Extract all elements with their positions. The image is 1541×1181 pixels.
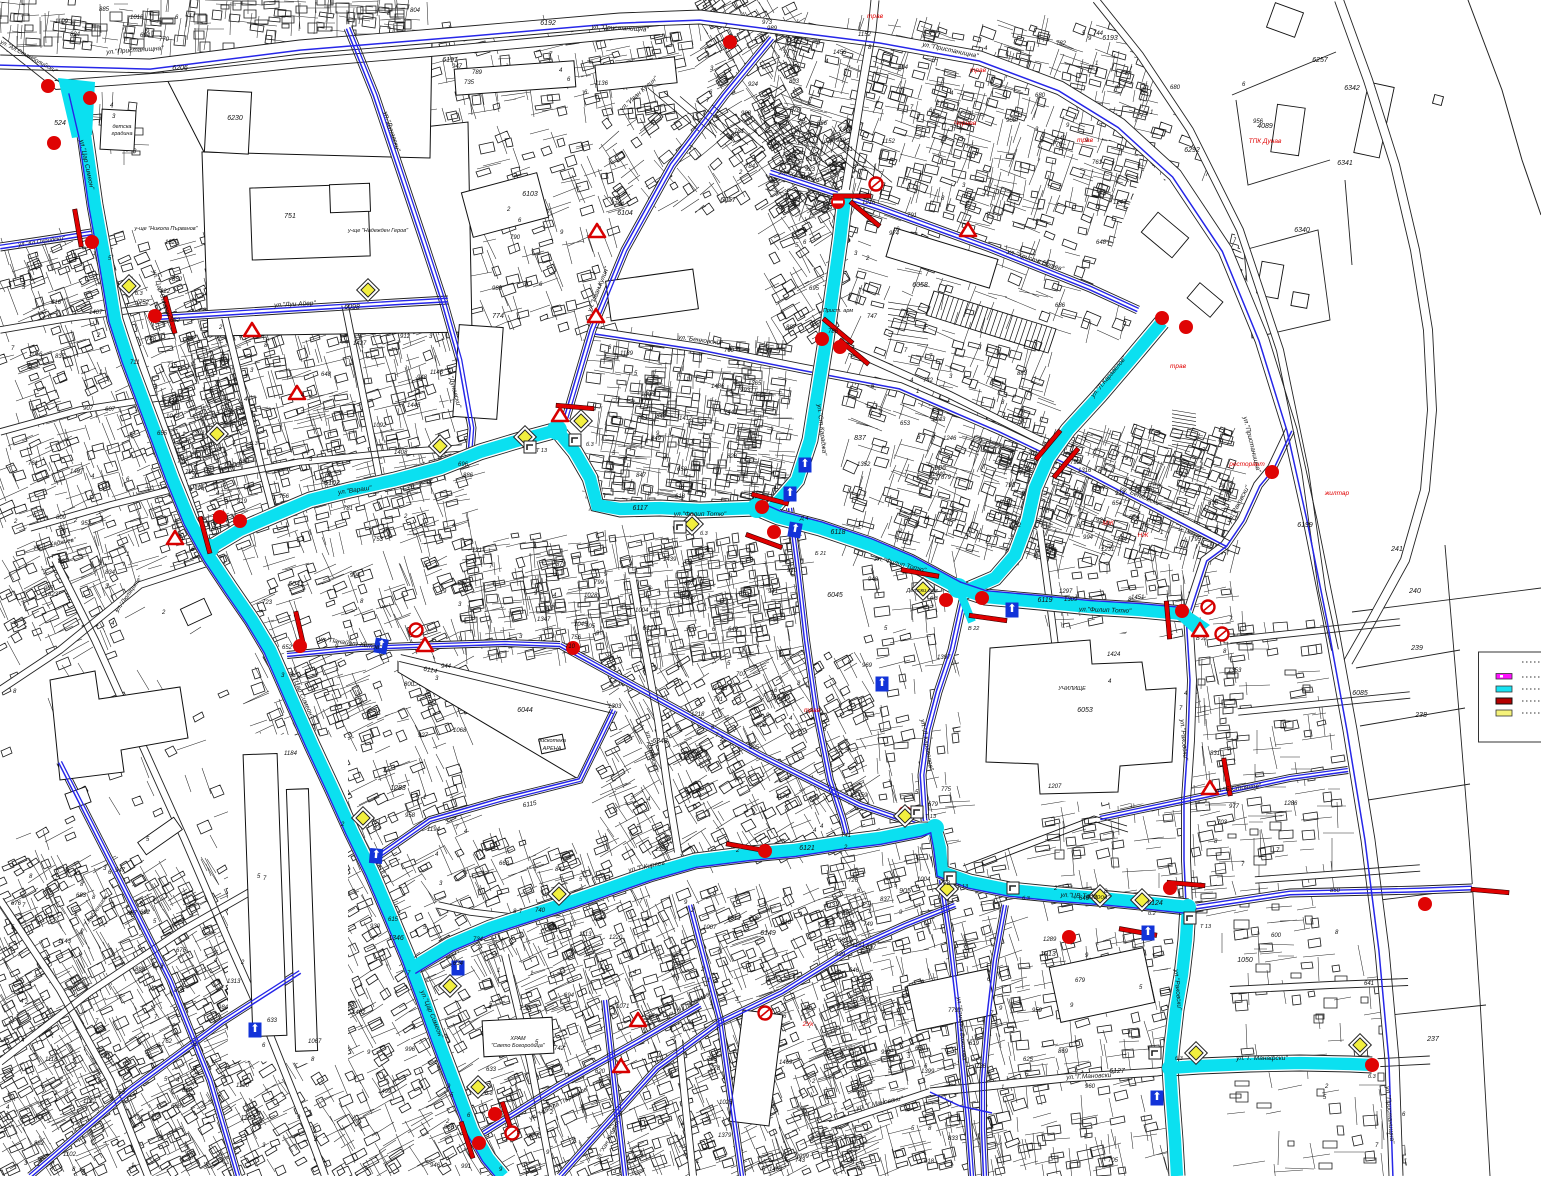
svg-text:1379: 1379: [718, 1133, 732, 1139]
svg-text:1: 1: [707, 978, 710, 984]
svg-text:Т 13: Т 13: [925, 814, 937, 820]
svg-text:1329: 1329: [165, 240, 179, 246]
svg-text:2: 2: [865, 256, 870, 262]
svg-text:6292: 6292: [1184, 147, 1200, 154]
svg-text:1013: 1013: [727, 916, 741, 922]
svg-text:"Свето Богородица": "Свето Богородица": [491, 1043, 546, 1049]
svg-text:882: 882: [34, 1141, 45, 1147]
svg-text:744: 744: [1093, 31, 1104, 37]
svg-text:705: 705: [1108, 1158, 1119, 1164]
svg-text:960: 960: [1085, 1084, 1096, 1090]
svg-text:1486: 1486: [711, 384, 725, 390]
svg-text:6100: 6100: [224, 462, 240, 469]
svg-text:648: 648: [321, 372, 332, 378]
svg-text:6191: 6191: [442, 57, 458, 64]
svg-text:1013: 1013: [1040, 951, 1056, 958]
svg-text:756: 756: [571, 635, 582, 641]
svg-text:2: 2: [935, 101, 940, 107]
svg-text:6124: 6124: [1147, 900, 1163, 907]
svg-text:1006: 1006: [641, 392, 655, 398]
svg-text:809: 809: [56, 515, 67, 521]
svg-text:834: 834: [105, 570, 116, 576]
svg-text:6121: 6121: [799, 845, 815, 852]
svg-text:751: 751: [371, 820, 381, 826]
svg-text:2: 2: [1324, 1084, 1329, 1090]
svg-text:966: 966: [444, 1125, 455, 1131]
svg-text:633: 633: [267, 1018, 278, 1024]
svg-text:2: 2: [1053, 886, 1058, 892]
svg-text:2: 2: [735, 848, 740, 854]
svg-text:1424: 1424: [1107, 652, 1121, 658]
svg-text:6053: 6053: [1077, 707, 1093, 714]
svg-text:676: 676: [11, 901, 22, 907]
svg-text:753: 753: [115, 1090, 126, 1096]
svg-text:711: 711: [1028, 451, 1038, 457]
svg-text:947: 947: [452, 64, 463, 70]
svg-text:1: 1: [223, 449, 226, 455]
svg-text:907: 907: [83, 406, 94, 412]
svg-text:1441: 1441: [724, 410, 737, 416]
svg-text:б.3: б.3: [250, 441, 259, 447]
svg-text:648: 648: [1096, 240, 1107, 246]
svg-text:646: 646: [1079, 896, 1090, 902]
svg-text:759: 759: [770, 695, 781, 701]
svg-text:944: 944: [441, 664, 452, 670]
svg-text:715: 715: [167, 363, 178, 369]
svg-text:707: 707: [736, 672, 747, 678]
svg-text:1092: 1092: [373, 423, 387, 429]
svg-text:6342: 6342: [1344, 85, 1360, 92]
svg-text:2: 2: [567, 953, 572, 959]
svg-text:1334: 1334: [655, 847, 669, 853]
svg-text:1176: 1176: [776, 794, 790, 800]
svg-text:Т 13: Т 13: [536, 448, 548, 454]
svg-text:1139: 1139: [620, 351, 634, 357]
svg-text:1: 1: [856, 1052, 859, 1058]
svg-text:1067: 1067: [308, 1039, 322, 1045]
svg-text:675: 675: [176, 948, 187, 954]
svg-text:781: 781: [343, 506, 353, 512]
svg-text:1182: 1182: [83, 1099, 97, 1105]
svg-text:828: 828: [727, 454, 738, 460]
svg-text:6119: 6119: [1037, 597, 1052, 604]
svg-text:615: 615: [388, 917, 399, 923]
svg-text:трав: трав: [867, 13, 884, 20]
svg-text:Т 13: Т 13: [1200, 924, 1212, 930]
svg-text:625: 625: [1023, 1057, 1034, 1063]
svg-text:2: 2: [24, 1000, 29, 1006]
svg-text:1451: 1451: [1131, 595, 1144, 601]
svg-text:6104: 6104: [617, 210, 633, 217]
svg-text:800: 800: [404, 682, 415, 688]
svg-text:776: 776: [1052, 142, 1063, 148]
svg-text:1: 1: [1160, 530, 1163, 536]
svg-text:783: 783: [707, 1057, 718, 1063]
svg-text:618: 618: [924, 1159, 935, 1165]
svg-text:трав: трав: [970, 67, 987, 74]
svg-text:697: 697: [127, 911, 138, 917]
svg-text:680: 680: [1170, 85, 1181, 91]
svg-text:2: 2: [506, 207, 511, 213]
svg-text:6193: 6193: [1102, 35, 1118, 42]
svg-text:1007: 1007: [703, 925, 717, 931]
svg-text:778: 778: [940, 881, 951, 887]
svg-text:б.3: б.3: [1022, 896, 1031, 902]
svg-text:887: 887: [786, 325, 797, 331]
svg-text:1152: 1152: [882, 139, 896, 145]
svg-text:959: 959: [1032, 1008, 1043, 1014]
svg-text:837: 837: [880, 897, 891, 903]
svg-text:1218: 1218: [691, 712, 705, 718]
svg-text:6044: 6044: [517, 707, 533, 714]
svg-text:654: 654: [1129, 515, 1140, 521]
svg-text:927: 927: [418, 733, 429, 739]
svg-text:711: 711: [130, 360, 140, 366]
svg-text:2: 2: [719, 737, 724, 743]
svg-text:6098: 6098: [344, 304, 360, 311]
svg-text:633: 633: [486, 1067, 497, 1073]
svg-text:УЧИЛИЩЕ: УЧИЛИЩЕ: [1057, 686, 1086, 692]
svg-text:1303: 1303: [608, 704, 622, 710]
svg-text:1207: 1207: [1048, 784, 1062, 790]
svg-text:775: 775: [941, 787, 952, 793]
svg-text:906: 906: [934, 465, 946, 472]
svg-text:993: 993: [740, 388, 751, 394]
svg-text:616: 616: [51, 300, 62, 306]
svg-text:1: 1: [37, 1162, 40, 1168]
svg-text:619: 619: [969, 1041, 980, 1047]
svg-text:1243: 1243: [932, 417, 946, 423]
svg-text:658: 658: [677, 467, 688, 473]
svg-text:б.3: б.3: [700, 531, 709, 537]
svg-text:1246: 1246: [943, 436, 957, 442]
svg-text:1: 1: [1095, 61, 1098, 67]
svg-text:1216: 1216: [862, 200, 876, 206]
svg-text:860: 860: [239, 459, 250, 465]
svg-text:1068: 1068: [453, 728, 467, 734]
svg-text:946: 946: [430, 1163, 441, 1169]
svg-text:847: 847: [636, 473, 647, 479]
svg-text:трав: трав: [1077, 137, 1094, 144]
svg-text:1050: 1050: [1237, 957, 1253, 964]
svg-text:680: 680: [1035, 93, 1046, 99]
svg-text:652: 652: [170, 318, 181, 324]
svg-text:652: 652: [282, 645, 293, 651]
svg-text:790: 790: [510, 235, 521, 241]
svg-text:603: 603: [838, 938, 849, 944]
svg-text:детска: детска: [113, 124, 132, 130]
svg-text:1217: 1217: [472, 548, 486, 554]
svg-text:2: 2: [53, 1091, 58, 1097]
svg-text:239: 239: [1410, 645, 1423, 652]
svg-text:1: 1: [916, 389, 919, 395]
svg-text:701: 701: [100, 1054, 110, 1060]
svg-text:2: 2: [571, 1139, 576, 1145]
svg-text:ул."Филип Тотю": ул."Филип Тотю": [673, 511, 727, 518]
svg-text:трав: трав: [1170, 363, 1187, 370]
svg-text:1109: 1109: [55, 19, 69, 25]
svg-text:744: 744: [614, 202, 625, 208]
svg-text:683: 683: [76, 893, 87, 899]
svg-text:2: 2: [340, 822, 345, 828]
svg-text:988: 988: [741, 111, 752, 117]
svg-text:1004: 1004: [635, 608, 649, 614]
svg-text:653: 653: [900, 421, 911, 427]
svg-text:1385: 1385: [1139, 487, 1153, 493]
svg-text:679: 679: [928, 802, 939, 808]
svg-text:2: 2: [738, 170, 743, 176]
svg-text:756: 756: [279, 494, 290, 500]
svg-text:1: 1: [807, 49, 810, 55]
svg-text:1: 1: [339, 339, 342, 345]
svg-text:1: 1: [195, 462, 198, 468]
svg-text:850: 850: [1330, 888, 1341, 894]
svg-text:789: 789: [472, 70, 483, 76]
svg-text:600: 600: [1271, 933, 1282, 939]
svg-text:810: 810: [781, 920, 792, 926]
svg-text:1459: 1459: [839, 127, 853, 133]
svg-text:742: 742: [554, 1046, 565, 1052]
svg-text:779: 779: [948, 1008, 959, 1014]
svg-text:240: 240: [1408, 588, 1421, 595]
svg-text:697: 697: [684, 581, 695, 587]
svg-text:842: 842: [555, 867, 566, 873]
svg-text:823: 823: [48, 592, 59, 598]
svg-text:2: 2: [811, 1079, 816, 1085]
svg-text:989: 989: [767, 26, 778, 32]
svg-text:1164: 1164: [240, 1115, 255, 1122]
svg-text:1: 1: [686, 377, 689, 383]
svg-text:850: 850: [172, 277, 183, 283]
svg-text:784: 784: [1117, 537, 1128, 543]
svg-text:734: 734: [473, 937, 484, 943]
svg-text:837: 837: [854, 435, 867, 442]
svg-text:у-ще "Никола Първанов": у-ще "Никола Първанов": [133, 226, 198, 232]
svg-text:1427: 1427: [353, 341, 367, 347]
svg-text:2: 2: [403, 514, 408, 520]
svg-text:619: 619: [806, 157, 817, 163]
svg-text:919: 919: [237, 499, 248, 505]
svg-text:742: 742: [923, 378, 934, 384]
svg-text:791: 791: [907, 213, 917, 219]
svg-text:1184: 1184: [284, 751, 298, 757]
svg-text:6230: 6230: [227, 115, 243, 122]
svg-text:958: 958: [405, 813, 416, 819]
svg-text:749: 749: [863, 922, 874, 928]
svg-text:241: 241: [1390, 546, 1403, 553]
svg-text:1289: 1289: [1043, 937, 1057, 943]
svg-text:1412: 1412: [679, 416, 693, 422]
svg-text:791: 791: [713, 697, 723, 703]
svg-text:АРЕНА: АРЕНА: [542, 746, 562, 752]
svg-text:2: 2: [161, 610, 166, 616]
svg-text:б.3: б.3: [485, 1091, 494, 1097]
svg-text:1023: 1023: [714, 686, 728, 692]
svg-text:2: 2: [13, 519, 18, 525]
svg-text:786: 786: [828, 329, 839, 335]
svg-text:1459: 1459: [854, 793, 868, 799]
svg-text:В 22: В 22: [968, 626, 979, 632]
svg-text:1: 1: [1001, 1085, 1004, 1091]
svg-text:752: 752: [139, 300, 150, 306]
svg-text:1: 1: [363, 642, 366, 648]
svg-text:650: 650: [915, 1046, 926, 1052]
svg-text:ул."Г. Манафски": ул."Г. Манафски": [1235, 1055, 1288, 1062]
svg-text:2: 2: [843, 845, 848, 851]
svg-text:741: 741: [841, 833, 851, 839]
svg-text:796: 796: [194, 486, 205, 492]
svg-text:607: 607: [105, 407, 116, 413]
svg-text:градина: градина: [111, 131, 132, 137]
svg-text:2: 2: [73, 518, 78, 524]
svg-text:1: 1: [696, 1159, 699, 1165]
svg-text:1100: 1100: [236, 1083, 250, 1089]
svg-text:6085: 6085: [1352, 690, 1368, 697]
svg-text:1113: 1113: [579, 932, 592, 938]
svg-text:6192: 6192: [540, 20, 556, 27]
svg-text:994: 994: [1083, 535, 1094, 541]
svg-text:МЖ: МЖ: [1102, 520, 1114, 527]
svg-text:1456: 1456: [833, 50, 847, 56]
svg-text:1: 1: [747, 446, 750, 452]
svg-text:996: 996: [405, 1047, 416, 1053]
svg-text:908: 908: [1006, 118, 1017, 124]
svg-text:969: 969: [862, 663, 873, 669]
svg-text:1462: 1462: [352, 1010, 366, 1016]
svg-text:1118: 1118: [45, 1057, 58, 1063]
svg-text:б.2: б.2: [1148, 911, 1156, 917]
svg-text:726: 726: [848, 878, 859, 884]
svg-text:923: 923: [805, 167, 816, 173]
svg-text:736: 736: [976, 1064, 987, 1070]
svg-text:844: 844: [656, 414, 667, 420]
svg-text:948: 948: [868, 577, 879, 583]
svg-text:770: 770: [159, 37, 170, 43]
svg-text:995: 995: [749, 745, 760, 751]
svg-text:6340: 6340: [1294, 227, 1310, 234]
svg-text:1042: 1042: [166, 414, 180, 420]
svg-text:992: 992: [881, 1050, 892, 1056]
svg-text:238: 238: [1414, 712, 1427, 719]
svg-text:2: 2: [1218, 483, 1223, 489]
svg-text:1347: 1347: [537, 617, 551, 623]
svg-text:2: 2: [96, 333, 101, 339]
svg-text:1: 1: [907, 1049, 910, 1055]
svg-text:803: 803: [789, 79, 800, 85]
svg-text:ХРАМ: ХРАМ: [509, 1036, 526, 1042]
svg-text:1: 1: [99, 370, 102, 376]
svg-text:1445: 1445: [407, 403, 421, 409]
svg-text:1161: 1161: [852, 943, 865, 949]
svg-text:822: 822: [160, 289, 171, 295]
svg-text:2: 2: [700, 967, 705, 973]
svg-text:524: 524: [54, 120, 66, 127]
svg-text:б.3: б.3: [1175, 1056, 1184, 1062]
svg-text:930: 930: [370, 924, 381, 930]
svg-text:6257: 6257: [1312, 57, 1329, 64]
svg-text:869: 869: [1058, 1049, 1069, 1055]
svg-text:б.3: б.3: [1368, 1074, 1377, 1080]
svg-text:ТПК Дунав: ТПК Дунав: [1249, 138, 1282, 145]
svg-text:695: 695: [809, 286, 820, 292]
svg-text:НЖ: НЖ: [1138, 532, 1150, 539]
svg-text:6199: 6199: [1297, 522, 1313, 529]
svg-text:784: 784: [745, 164, 756, 170]
svg-text:6343: 6343: [652, 738, 668, 745]
svg-text:883: 883: [1017, 371, 1028, 377]
svg-text:1469: 1469: [779, 1060, 793, 1066]
svg-text:Прист. арм: Прист. арм: [823, 308, 853, 314]
svg-text:831: 831: [1210, 751, 1220, 757]
svg-text:973: 973: [762, 20, 773, 26]
svg-text:1141: 1141: [767, 141, 780, 147]
svg-text:1297: 1297: [1059, 589, 1073, 595]
svg-text:620: 620: [595, 1069, 606, 1075]
svg-text:948: 948: [417, 375, 428, 381]
svg-text:2: 2: [156, 1113, 161, 1119]
svg-text:994: 994: [350, 573, 361, 579]
svg-text:1: 1: [182, 432, 185, 438]
svg-text:620: 620: [860, 997, 871, 1003]
svg-text:866: 866: [817, 121, 828, 127]
svg-text:1352: 1352: [857, 462, 871, 468]
svg-text:1045: 1045: [574, 622, 588, 628]
svg-text:670: 670: [1208, 501, 1219, 507]
svg-text:792: 792: [1070, 460, 1081, 466]
svg-text:1: 1: [131, 1163, 134, 1169]
svg-text:696: 696: [458, 462, 469, 468]
svg-text:трав: трав: [804, 707, 821, 714]
svg-text:Чернев: Чернев: [954, 120, 977, 127]
svg-text:740: 740: [535, 908, 546, 914]
svg-text:1286: 1286: [1284, 801, 1298, 807]
svg-text:949: 949: [836, 138, 847, 144]
svg-text:914: 914: [1115, 491, 1126, 497]
svg-text:753: 753: [373, 537, 384, 543]
svg-text:679: 679: [1075, 978, 1086, 984]
svg-text:6045: 6045: [827, 592, 843, 599]
svg-text:697: 697: [866, 945, 877, 951]
svg-text:1397: 1397: [937, 655, 951, 661]
svg-text:866: 866: [842, 911, 853, 917]
svg-text:1316: 1316: [1078, 468, 1092, 474]
svg-text:885: 885: [99, 7, 110, 13]
svg-text:6114: 6114: [642, 625, 657, 632]
svg-text:941: 941: [768, 589, 778, 595]
svg-text:723: 723: [262, 600, 273, 606]
svg-text:Детски дом: Детски дом: [905, 588, 937, 594]
svg-text:1194: 1194: [427, 827, 441, 833]
svg-text:1231: 1231: [1101, 547, 1114, 553]
svg-text:732: 732: [177, 459, 188, 465]
svg-text:б.3: б.3: [135, 291, 144, 297]
svg-text:889: 889: [135, 967, 146, 973]
svg-text:703: 703: [1217, 820, 1228, 826]
svg-text:678: 678: [790, 108, 801, 114]
svg-text:1: 1: [423, 795, 426, 801]
svg-text:1407: 1407: [89, 310, 103, 316]
svg-text:782: 782: [1056, 41, 1067, 47]
svg-text:867: 867: [58, 559, 69, 565]
svg-text:1049: 1049: [932, 472, 946, 478]
svg-text:607: 607: [544, 606, 555, 612]
svg-text:1309: 1309: [1064, 597, 1078, 603]
svg-text:778: 778: [710, 1066, 721, 1072]
svg-text:б.3: б.3: [930, 596, 939, 602]
svg-text:999: 999: [799, 1154, 810, 1160]
svg-text:1283: 1283: [390, 785, 406, 792]
svg-text:1018: 1018: [130, 15, 144, 21]
